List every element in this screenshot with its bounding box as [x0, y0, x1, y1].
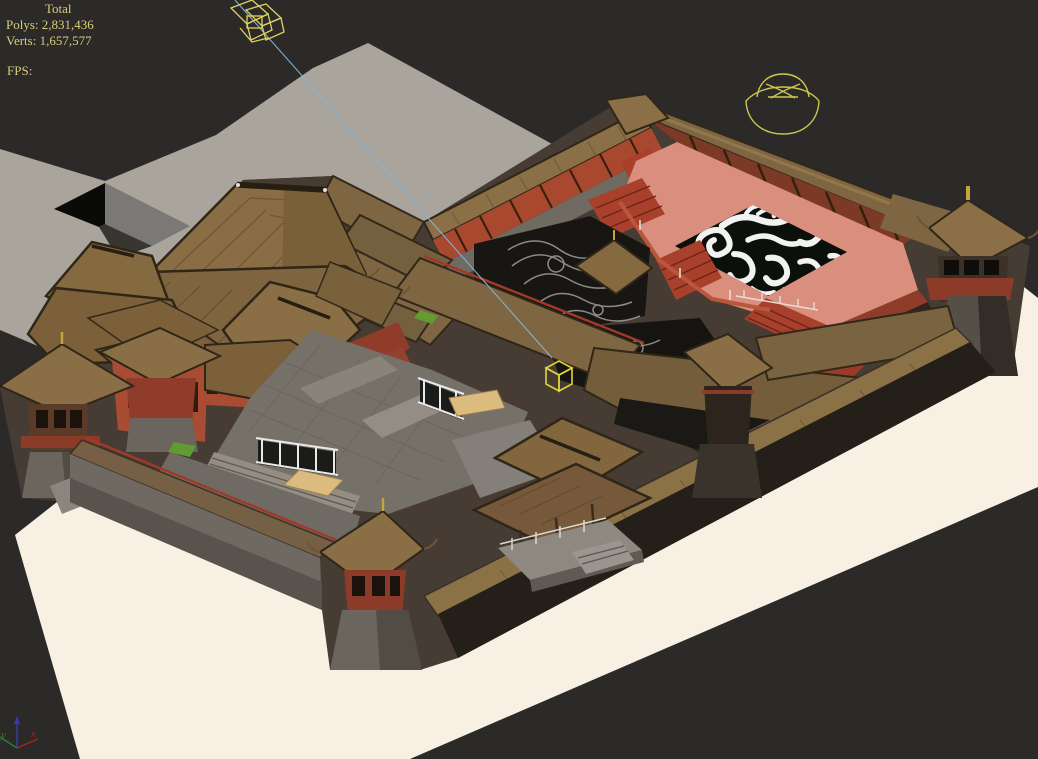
svg-text:Verts: 1,657,577: Verts: 1,657,577	[6, 33, 92, 48]
svg-text:x: x	[30, 728, 36, 740]
svg-text:Polys: 2,831,436: Polys: 2,831,436	[6, 17, 94, 32]
svg-text:FPS:: FPS:	[7, 63, 32, 78]
svg-text:y: y	[0, 729, 6, 741]
svg-text:Total: Total	[45, 1, 72, 16]
